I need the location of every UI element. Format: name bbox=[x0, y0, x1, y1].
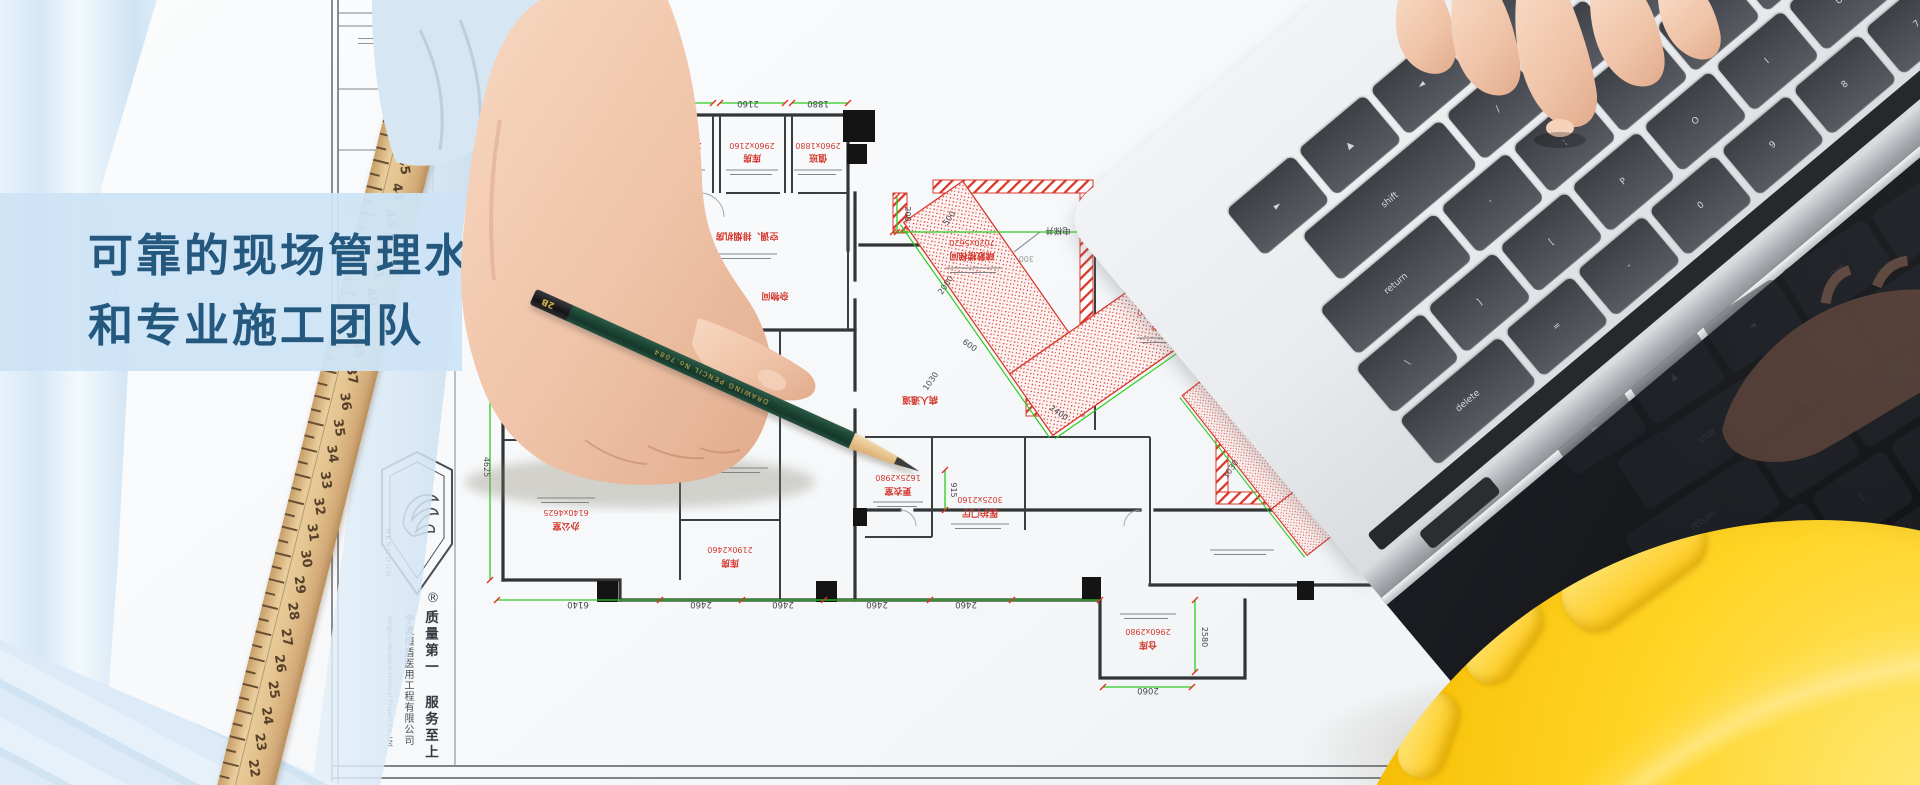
ruler-halftick bbox=[291, 486, 301, 490]
ruler-halftick bbox=[272, 565, 282, 569]
ruler-halftick bbox=[278, 539, 288, 543]
ruler-tick bbox=[301, 447, 317, 453]
ruler-tick bbox=[262, 604, 278, 610]
headline-line1: 可靠的现场管理水平 bbox=[88, 219, 520, 284]
ruler-halftick bbox=[226, 748, 236, 752]
ruler-halftick bbox=[220, 774, 230, 778]
ruler-tick bbox=[288, 499, 304, 505]
ruler-tick bbox=[386, 106, 402, 112]
ruler-number: 48 bbox=[415, 77, 432, 97]
ruler-halftick bbox=[311, 408, 321, 412]
ruler-number: 28 bbox=[284, 601, 301, 621]
ruler-halftick bbox=[317, 381, 327, 385]
ruler-halftick bbox=[298, 460, 308, 464]
titleblock-scale: 1:100 bbox=[352, 14, 438, 24]
ruler-halftick bbox=[233, 722, 243, 726]
ruler-number: 22 bbox=[245, 758, 262, 778]
ruler-tick bbox=[229, 735, 245, 741]
ruler-number: 46 bbox=[402, 130, 419, 150]
ruler-halftick bbox=[389, 93, 399, 97]
pencil-grade: 2B bbox=[540, 296, 556, 311]
ruler-tick bbox=[268, 578, 284, 584]
hero-banner: 2860 2160 1880 7380 6140 2460 2460 2460 … bbox=[0, 0, 1920, 785]
ruler-halftick bbox=[246, 670, 256, 674]
ruler-number: 23 bbox=[251, 732, 268, 752]
ruler-halftick bbox=[239, 696, 249, 700]
ruler-halftick bbox=[370, 172, 380, 176]
ruler-tick bbox=[236, 709, 252, 715]
ruler-tick bbox=[393, 80, 409, 86]
ruler-number: 30 bbox=[297, 549, 314, 569]
ruler-number: 45 bbox=[395, 156, 412, 176]
ruler-number: 33 bbox=[317, 470, 334, 490]
ruler-number: 25 bbox=[264, 680, 281, 700]
ruler-halftick bbox=[396, 67, 406, 71]
ruler-halftick bbox=[259, 617, 269, 621]
ruler-number: 27 bbox=[277, 627, 294, 647]
titleblock-row1: 设 计 图 bbox=[352, 1, 438, 12]
ruler-tick bbox=[373, 159, 389, 165]
ruler-halftick bbox=[265, 591, 275, 595]
ruler-number: 47 bbox=[408, 103, 425, 123]
ruler-tick bbox=[282, 526, 298, 532]
ruler-halftick bbox=[285, 512, 295, 516]
registered-mark: ® bbox=[424, 590, 442, 608]
ruler-tick bbox=[380, 133, 396, 139]
ruler-tick bbox=[223, 761, 239, 767]
titleblock-text-lines bbox=[358, 38, 434, 48]
ruler-halftick bbox=[252, 643, 262, 647]
ruler-halftick bbox=[376, 146, 386, 150]
ruler-tick bbox=[295, 473, 311, 479]
headline-panel: 可靠的现场管理水平 和专业施工团队 bbox=[0, 193, 462, 371]
ruler-halftick bbox=[304, 434, 314, 438]
ruler-tick bbox=[275, 552, 291, 558]
ruler-tick bbox=[308, 421, 324, 427]
ruler-tick bbox=[249, 657, 265, 663]
ruler-number: 24 bbox=[258, 706, 275, 726]
quality-slogan: 质量第一 服务至上 bbox=[420, 610, 440, 761]
ruler-number: 36 bbox=[336, 392, 353, 412]
headline-line2: 和专业施工团队 bbox=[88, 289, 424, 354]
ruler-number: 32 bbox=[310, 496, 327, 516]
ruler-tick bbox=[314, 395, 330, 401]
ruler-tick bbox=[255, 630, 271, 636]
ruler-halftick bbox=[383, 120, 393, 124]
ruler-number: 26 bbox=[271, 654, 288, 674]
ruler-number: 35 bbox=[330, 418, 347, 438]
ruler-number: 31 bbox=[304, 523, 321, 543]
safety-helmet bbox=[1318, 520, 1920, 785]
ruler-number: 34 bbox=[323, 444, 340, 464]
ruler-number: 29 bbox=[291, 575, 308, 595]
ruler-tick bbox=[242, 683, 258, 689]
ruler-tick bbox=[366, 185, 382, 191]
